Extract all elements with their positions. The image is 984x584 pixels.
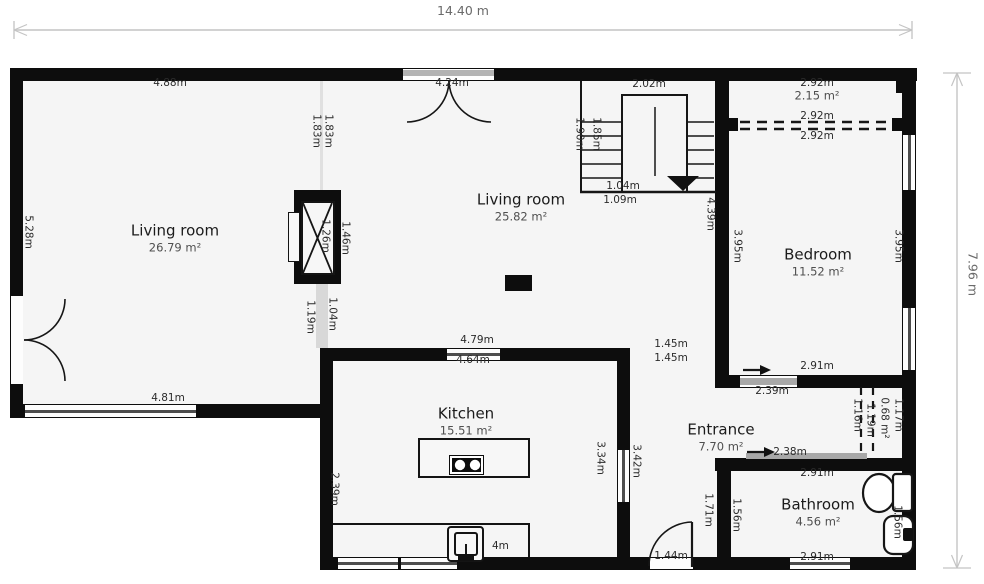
dim-label: 2.92m [800,131,834,142]
wall-stub-right [892,118,902,131]
floor-plan-canvas: 14.40 m 7.96 m 4m Living room26.79 m²Liv… [0,0,984,584]
window-glass-line [622,450,625,502]
dim-label: 2.91m [800,552,834,563]
dim-label: 1.04m [606,181,640,192]
dim-label: 2.91m [800,468,834,479]
dim-arrow [952,555,963,568]
dim-label: 1.90m [574,117,585,151]
dim-label: 1.44m [654,551,688,562]
dim-label: 1.04m [327,297,338,331]
dim-label: 4.64m [456,355,490,366]
wall-corner-topright [896,68,916,93]
kitchen-right-window [618,450,629,502]
dim-label: 4.39m [705,197,716,231]
kitchen-sink-inner [454,532,478,556]
dim-label: 1.83m [311,114,322,148]
room-label: Entrance [687,423,754,438]
dim-label: 1.46m [340,221,351,255]
dim-label: 4.24m [435,78,469,89]
window-glass-line [25,410,196,413]
dim-label: 1.19m [865,403,876,437]
dim-label: 1.17m [893,398,904,432]
room-label: Living room [131,224,219,239]
dim-label: 1.56m [892,505,903,539]
dim-arrow [952,73,963,86]
dim-label: 4.81m [151,393,185,404]
wall-bedroom-left [715,68,729,388]
dim-label: 2.02m [632,79,666,90]
dim-label: 2.39m [329,472,340,506]
overall-width-dimension: 14.40 m [437,5,489,18]
room-label: Kitchen [438,407,494,422]
dim-label: 2.92m [800,78,834,89]
room-label: Bedroom [784,248,852,263]
room-area-label: 26.79 m² [149,242,201,254]
room-area-label: 7.70 m² [698,441,743,453]
dim-label: 0.68 m² [879,397,890,438]
room-label: Living room [477,193,565,208]
room-area-label: 11.52 m² [792,266,844,278]
dim-label: 1.09m [603,195,637,206]
left-door-opening [11,296,23,384]
window-glass-line [401,562,457,565]
fireplace-notch [288,212,300,262]
dim-label: 2.38m [773,447,807,458]
dim-label: 1.83m [323,114,334,148]
window-glass-line [908,135,911,190]
dim-label: 3.95m [893,229,904,263]
dim-arrow [14,25,27,36]
window-glass-line [908,308,911,370]
room-area-label: 25.82 m² [495,211,547,223]
wall-kitchen-left [320,348,333,570]
dim-label: 5.28m [23,215,34,249]
kitchen-bottom-window-1 [338,558,398,569]
wall-stub-left [728,118,738,131]
cooktop [449,455,484,475]
dim-label: 1.45m [654,339,688,350]
column [505,275,532,291]
window-glass-line [338,562,398,565]
dim-label: 3.95m [732,229,743,263]
dim-label: 3.42m [631,444,642,478]
room-area-label: 2.15 m² [794,90,839,102]
dim-arrow [899,25,912,36]
dim-label: 2.91m [800,361,834,372]
dim-label: 1.85m [591,117,602,151]
top-door-track [403,70,494,76]
wall-bathroom-left [717,458,731,570]
dim-label: 1.26m [320,219,331,253]
dim-label: 3.34m [595,441,606,475]
dim-label: 2.39m [755,386,789,397]
room-label: Bathroom [781,498,855,513]
dim-label: 1.45m [654,353,688,364]
dim-label: 2.92m [800,111,834,122]
right-window-lower [903,308,915,370]
dim-label: 1.56m [731,498,742,532]
dim-label: 4.79m [460,335,494,346]
room-area-label: 4.56 m² [795,516,840,528]
dim-label: 1.16m [852,398,863,432]
dim-label: 1.19m [305,300,316,334]
right-window-upper [903,135,915,190]
dim-label: 4.88m [153,78,187,89]
overall-height-dimension: 7.96 m [966,252,979,296]
dim-label: 1.71m [703,493,714,527]
kitchen-counter [333,523,530,557]
living-window [25,405,196,417]
room-area-label: 15.51 m² [440,425,492,437]
